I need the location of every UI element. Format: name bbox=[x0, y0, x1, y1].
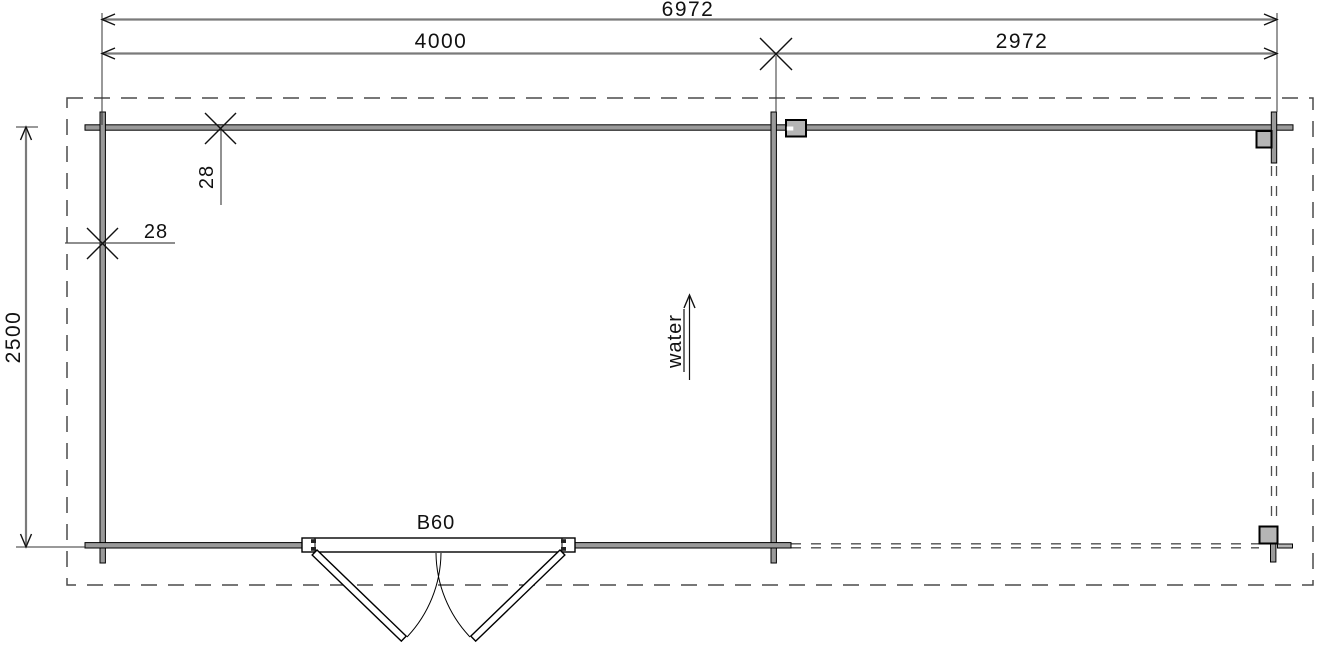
dim-label-cabin-width: 4000 bbox=[415, 30, 468, 53]
door-jamb-notch bbox=[311, 539, 316, 543]
beam-stub-bottom-right bbox=[1278, 544, 1293, 548]
left-wall bbox=[100, 112, 105, 563]
door-leaf-right bbox=[471, 550, 565, 641]
door-jamb-notch bbox=[561, 539, 566, 543]
back-wall bbox=[85, 125, 1293, 130]
corner-post-top-right bbox=[1257, 131, 1272, 148]
double-door bbox=[302, 538, 575, 641]
door-swing-arc-right bbox=[436, 553, 470, 637]
door-swing-arc-left bbox=[407, 553, 441, 637]
front-wall-right-segment bbox=[570, 543, 791, 548]
log-end-bottom-right bbox=[1271, 543, 1276, 562]
water-label: water bbox=[664, 314, 686, 369]
dim-label-side-wall-thickness: 28 bbox=[144, 221, 168, 243]
door-label: B60 bbox=[417, 512, 456, 534]
wall-connector-notch bbox=[787, 127, 794, 131]
front-wall-left-segment bbox=[85, 543, 302, 548]
dim-label-depth: 2500 bbox=[2, 311, 25, 364]
dim-label-total-width: 6972 bbox=[662, 0, 715, 21]
drawing-canvas: 6972 4000 2972 2500 28 28 B60 water bbox=[0, 0, 1323, 650]
corner-post-bottom-right bbox=[1260, 527, 1278, 544]
partition-wall bbox=[771, 112, 776, 563]
door-jamb-notch bbox=[561, 547, 566, 551]
dim-label-canopy-width: 2972 bbox=[996, 30, 1049, 53]
door-leaf-left bbox=[312, 550, 406, 641]
dim-label-back-wall-thickness: 28 bbox=[196, 165, 218, 189]
door-jamb-notch bbox=[311, 547, 316, 551]
door-frame bbox=[302, 538, 575, 552]
floor-plan-drawing: 6972 4000 2972 2500 28 28 B60 water bbox=[0, 0, 1323, 650]
